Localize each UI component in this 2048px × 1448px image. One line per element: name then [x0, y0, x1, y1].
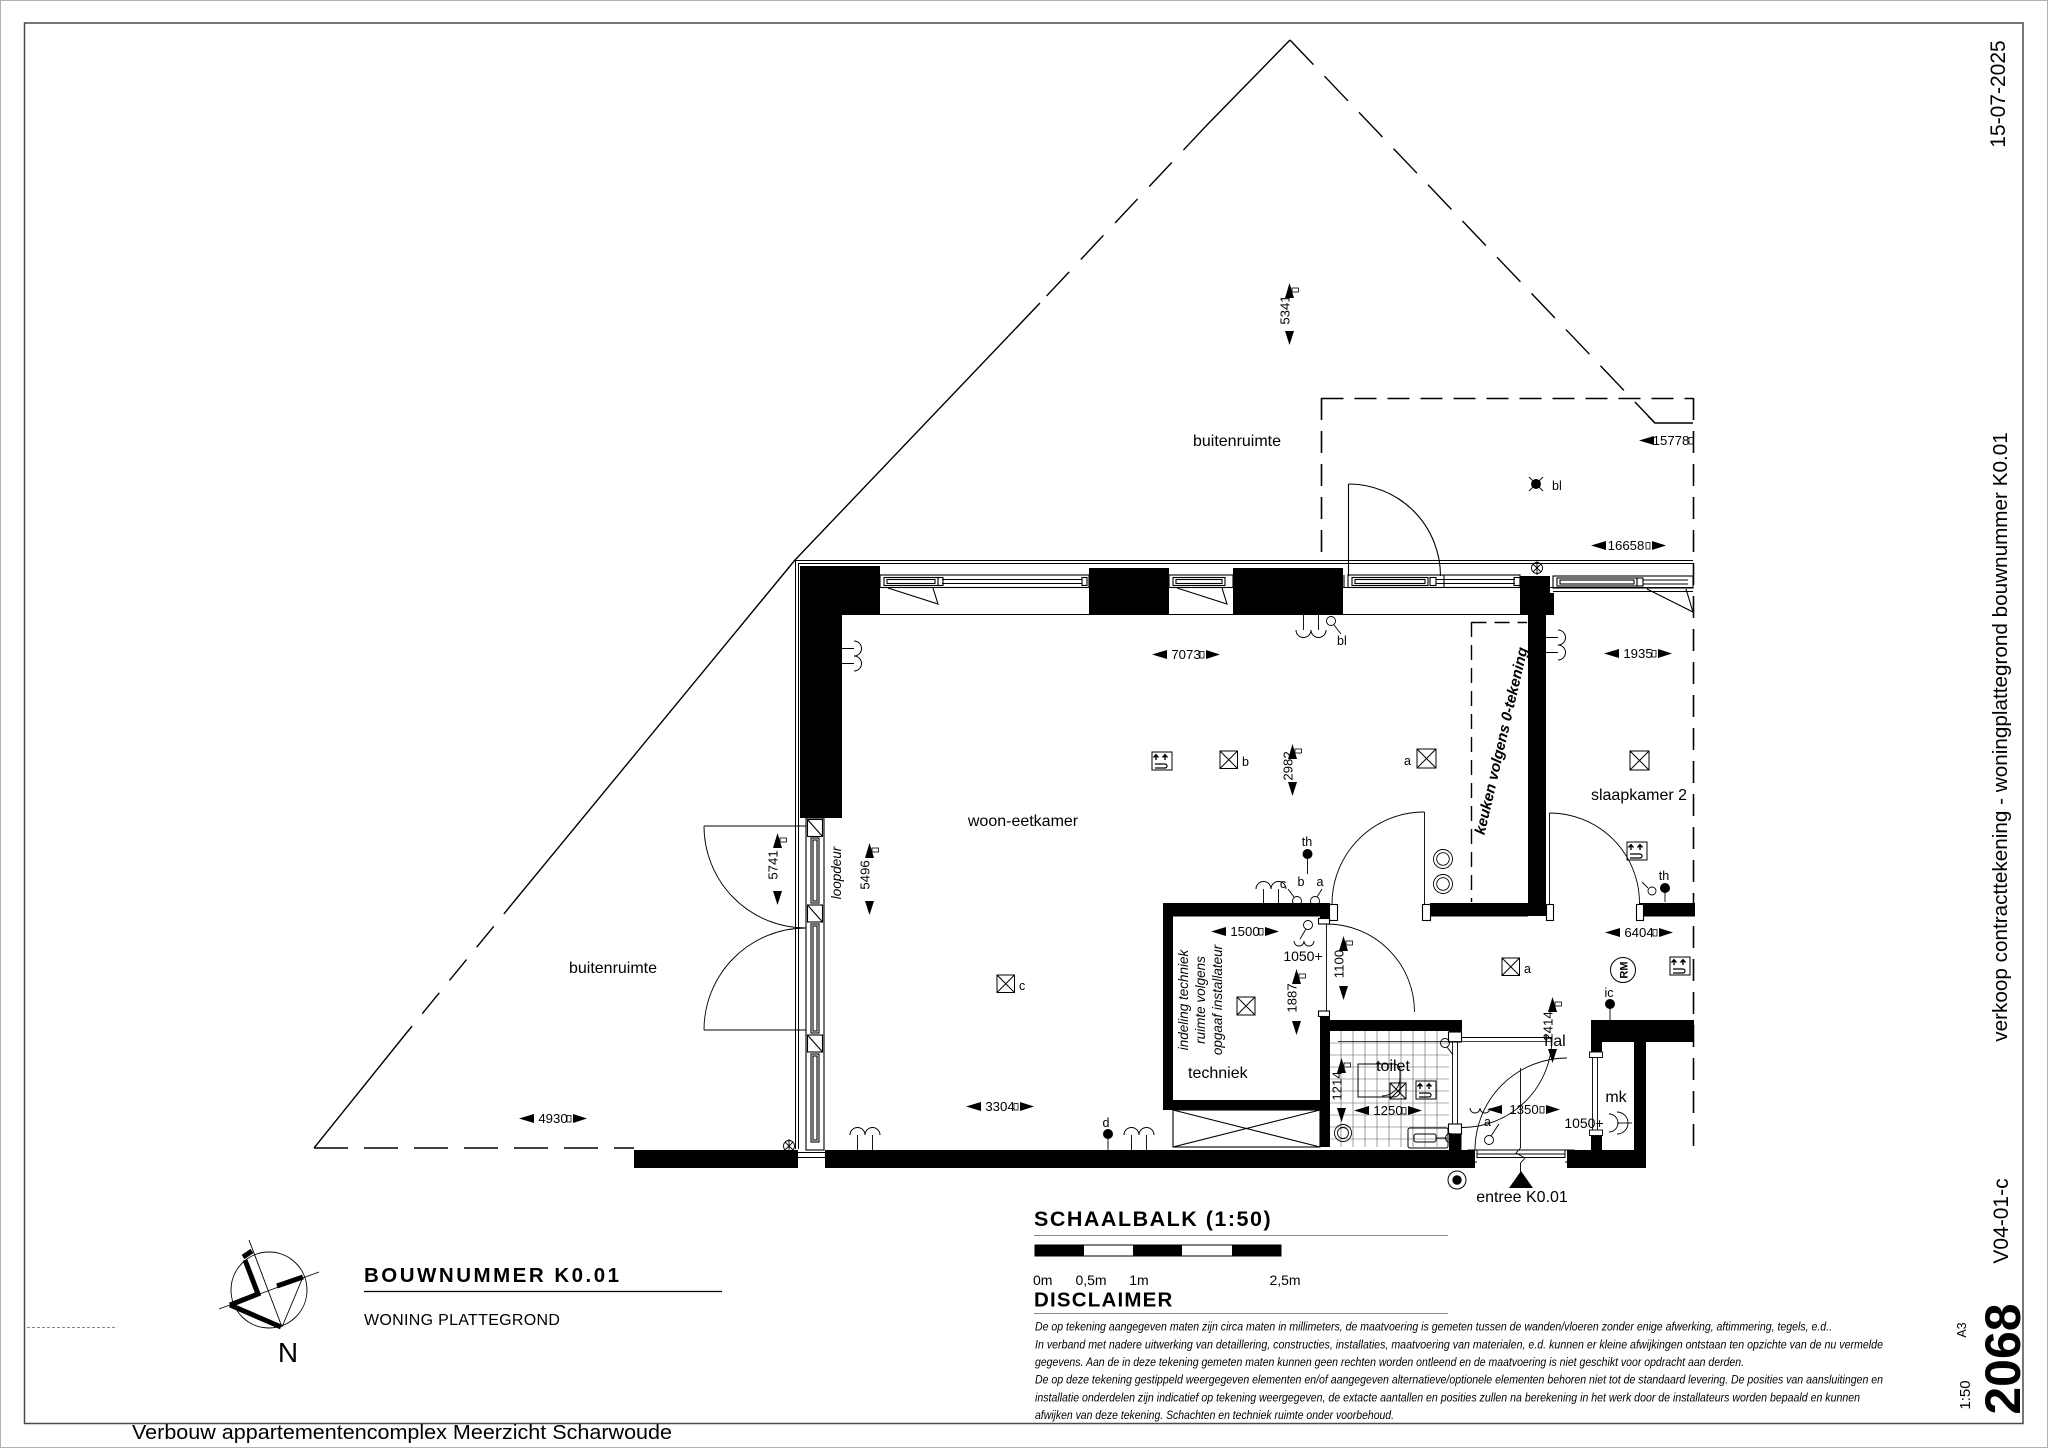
svg-text:1050+: 1050+ [1283, 948, 1322, 964]
svg-text:3304: 3304 [985, 1099, 1014, 1114]
svg-text:entree K0.01: entree K0.01 [1476, 1189, 1568, 1206]
svg-text:1214: 1214 [1330, 1071, 1345, 1100]
svg-text:b: b [1298, 875, 1305, 889]
svg-text:1935: 1935 [1623, 646, 1652, 661]
svg-text:loopdeur: loopdeur [829, 846, 844, 899]
svg-text:A3: A3 [1955, 1322, 1969, 1337]
svg-text:d: d [1103, 1116, 1110, 1130]
svg-text:De op tekening aangegeven mate: De op tekening aangegeven maten zijn cir… [1035, 1322, 1832, 1334]
svg-text:5741: 5741 [766, 850, 781, 879]
svg-text:1:50: 1:50 [1957, 1380, 1974, 1409]
svg-text:In verband met nadere uitwerki: In verband met nadere uitwerking van det… [1035, 1340, 1883, 1352]
svg-text:1350: 1350 [1509, 1102, 1538, 1117]
svg-text:hal: hal [1544, 1033, 1565, 1050]
svg-text:SCHAALBALK (1:50): SCHAALBALK (1:50) [1034, 1207, 1272, 1231]
svg-text:4930: 4930 [538, 1111, 567, 1126]
svg-text:N: N [278, 1337, 298, 1368]
svg-text:2982: 2982 [1281, 751, 1296, 780]
svg-text:V04-01-c: V04-01-c [1990, 1178, 2013, 1263]
svg-text:toilet: toilet [1376, 1058, 1410, 1075]
svg-text:afwijken van deze tekening. Sc: afwijken van deze tekening. Schachten en… [1035, 1410, 1394, 1422]
svg-text:buitenruimte: buitenruimte [1193, 433, 1281, 450]
svg-text:2068: 2068 [1975, 1303, 2031, 1414]
svg-text:mk: mk [1605, 1089, 1627, 1106]
svg-text:b: b [1242, 755, 1249, 769]
svg-text:gegevens. Aan de in deze teken: gegevens. Aan de in deze tekening gemete… [1035, 1357, 1744, 1369]
svg-text:verkoop contracttekening - won: verkoop contracttekening - woningplatteg… [1989, 432, 2012, 1042]
svg-text:5496: 5496 [858, 860, 873, 889]
svg-text:a: a [1524, 962, 1531, 976]
svg-text:0m: 0m [1033, 1272, 1052, 1288]
svg-text:1500: 1500 [1230, 924, 1259, 939]
svg-text:buitenruimte: buitenruimte [569, 960, 657, 977]
svg-text:RM: RM [1619, 961, 1631, 978]
svg-text:ic: ic [1604, 986, 1613, 1000]
svg-text:7073: 7073 [1171, 647, 1200, 662]
svg-text:installatie onderdelen zijn in: installatie onderdelen zijn indicatief o… [1035, 1393, 1860, 1405]
svg-text:woon-eetkamer: woon-eetkamer [967, 813, 1079, 830]
svg-text:slaapkamer 2: slaapkamer 2 [1591, 787, 1687, 804]
svg-text:1100: 1100 [1332, 950, 1347, 978]
svg-text:th: th [1659, 869, 1669, 883]
svg-text:a: a [1317, 875, 1324, 889]
svg-text:th: th [1302, 835, 1312, 849]
svg-text:DISCLAIMER: DISCLAIMER [1034, 1289, 1174, 1312]
svg-text:c: c [1019, 979, 1025, 993]
svg-text:1887: 1887 [1285, 983, 1300, 1012]
svg-text:15778: 15778 [1653, 433, 1690, 448]
svg-text:1050+: 1050+ [1564, 1115, 1603, 1131]
svg-text:c: c [1280, 877, 1286, 891]
svg-text:Verbouw appartementencomplex M: Verbouw appartementencomplex Meerzicht S… [132, 1421, 672, 1444]
svg-text:De op deze tekening gestippeld: De op deze tekening gestippeld weergegev… [1035, 1375, 1883, 1387]
svg-text:opgaaf installateur: opgaaf installateur [1210, 944, 1225, 1055]
svg-text:bl: bl [1337, 634, 1347, 648]
svg-text:16658: 16658 [1608, 538, 1645, 553]
svg-text:6404: 6404 [1624, 925, 1653, 940]
svg-text:5341: 5341 [1278, 295, 1293, 324]
svg-text:a: a [1404, 754, 1411, 768]
svg-text:ruimte volgens: ruimte volgens [1193, 956, 1208, 1044]
svg-text:15-07-2025: 15-07-2025 [1987, 40, 2010, 147]
svg-text:indeling techniek: indeling techniek [1176, 948, 1191, 1050]
svg-text:2,5m: 2,5m [1269, 1272, 1300, 1288]
svg-text:bl: bl [1552, 479, 1562, 493]
svg-text:1m: 1m [1129, 1272, 1148, 1288]
svg-text:1250: 1250 [1373, 1103, 1402, 1118]
svg-text:techniek: techniek [1188, 1065, 1249, 1082]
svg-text:WONING PLATTEGROND: WONING PLATTEGROND [364, 1312, 560, 1329]
svg-text:0,5m: 0,5m [1075, 1272, 1106, 1288]
svg-text:a: a [1484, 1115, 1491, 1129]
svg-text:BOUWNUMMER K0.01: BOUWNUMMER K0.01 [364, 1264, 622, 1287]
